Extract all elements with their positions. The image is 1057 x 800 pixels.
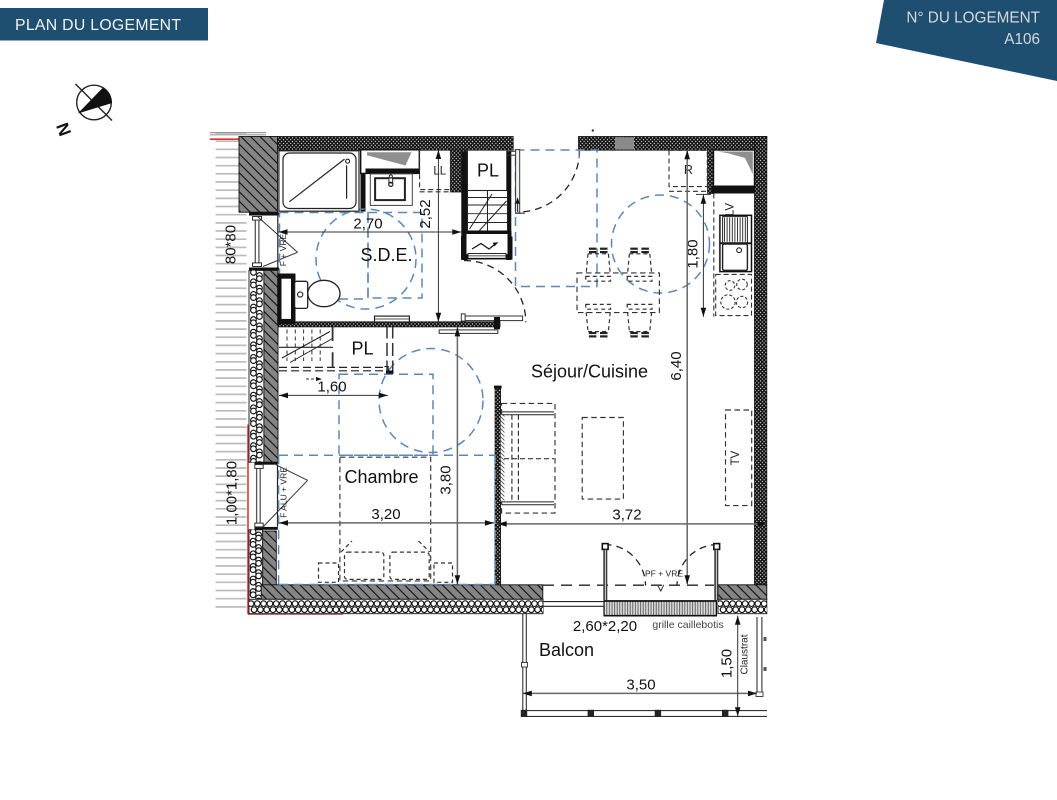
- svg-text:Balcon: Balcon: [539, 640, 594, 660]
- svg-text:Claustrat: Claustrat: [740, 634, 751, 674]
- svg-text:6,40: 6,40: [668, 351, 685, 380]
- svg-text:1,50: 1,50: [719, 649, 736, 678]
- svg-text:N: N: [52, 120, 75, 139]
- svg-text:S.D.E.: S.D.E.: [360, 245, 412, 265]
- svg-text:3,80: 3,80: [438, 465, 455, 494]
- svg-text:80*80: 80*80: [223, 225, 240, 264]
- svg-text:A106: A106: [1004, 31, 1040, 48]
- svg-text:grille caillebotis: grille caillebotis: [652, 619, 723, 631]
- svg-text:LL: LL: [433, 166, 446, 178]
- svg-text:PF + VRE: PF + VRE: [645, 569, 683, 579]
- svg-text:Séjour/Cuisine: Séjour/Cuisine: [531, 362, 648, 382]
- svg-text:3,72: 3,72: [612, 507, 641, 524]
- svg-text:3,20: 3,20: [371, 506, 400, 523]
- svg-text:PLAN DU LOGEMENT: PLAN DU LOGEMENT: [15, 17, 181, 34]
- svg-text:PL: PL: [351, 339, 373, 359]
- svg-text:Chambre: Chambre: [344, 467, 418, 487]
- svg-text:LV: LV: [725, 203, 737, 217]
- svg-text:3,50: 3,50: [626, 677, 655, 694]
- svg-text:1,00*1,80: 1,00*1,80: [224, 461, 241, 525]
- svg-text:1,60: 1,60: [317, 379, 346, 396]
- svg-text:F ALU + VRE: F ALU + VRE: [279, 467, 289, 518]
- svg-text:PL: PL: [477, 161, 499, 181]
- svg-text:TV: TV: [730, 450, 742, 465]
- svg-text:R: R: [684, 163, 693, 177]
- svg-text:2,52: 2,52: [417, 199, 434, 228]
- svg-text:N° DU LOGEMENT: N° DU LOGEMENT: [906, 10, 1040, 27]
- svg-text:2,70: 2,70: [353, 216, 382, 233]
- svg-text:2,60*2,20: 2,60*2,20: [573, 618, 637, 635]
